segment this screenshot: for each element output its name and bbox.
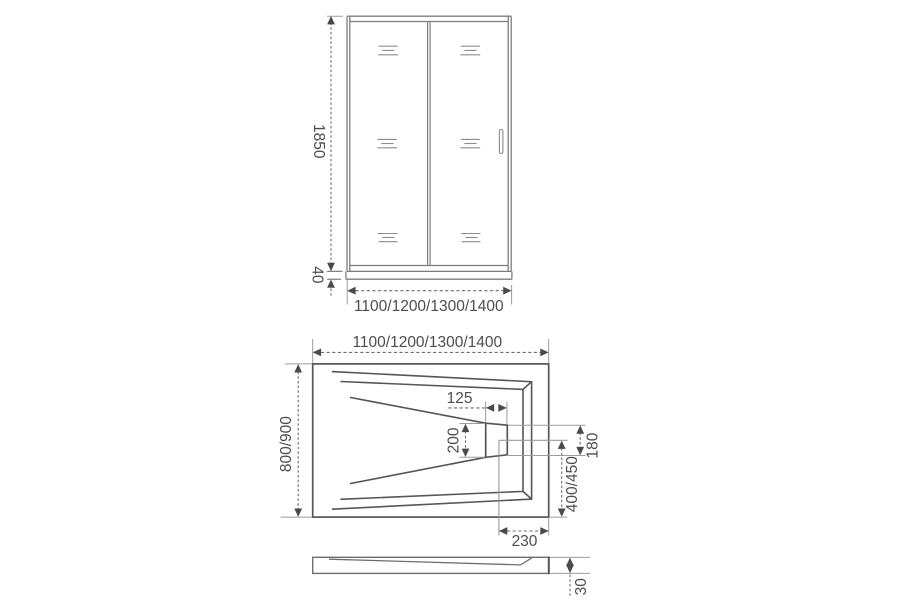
svg-text:400/450: 400/450 — [564, 456, 581, 512]
svg-text:125: 125 — [447, 390, 473, 407]
svg-text:200: 200 — [446, 427, 463, 453]
svg-text:230: 230 — [512, 533, 538, 550]
svg-text:1850: 1850 — [310, 124, 327, 159]
svg-text:1100/1200/1300/1400: 1100/1200/1300/1400 — [354, 298, 504, 315]
svg-text:800/900: 800/900 — [278, 416, 295, 472]
svg-text:1100/1200/1300/1400: 1100/1200/1300/1400 — [352, 334, 502, 351]
svg-text:180: 180 — [584, 432, 601, 458]
svg-text:30: 30 — [573, 578, 590, 596]
svg-text:40: 40 — [308, 266, 325, 284]
